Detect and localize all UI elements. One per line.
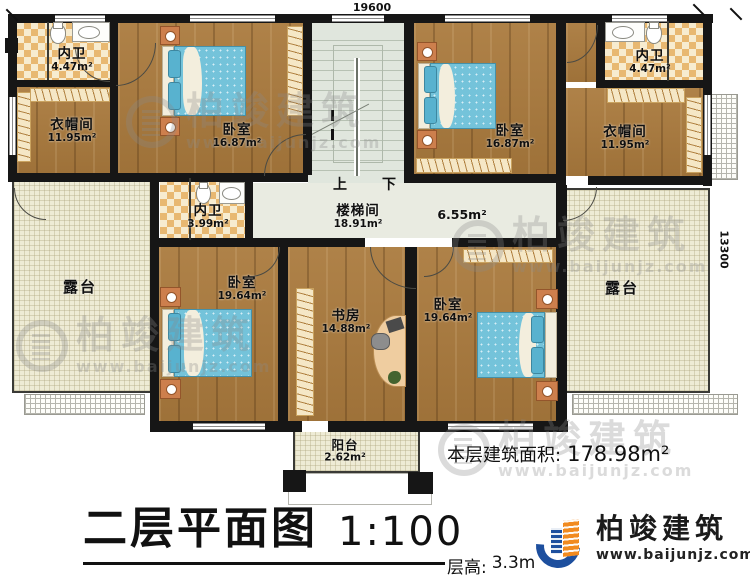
room-label-cloak-right: 衣帽间 11.95m² [601,125,650,151]
railing-side-right [710,94,738,180]
wall-hall-bottom-left [259,238,365,247]
dimension-top: 19600 [340,1,404,14]
window-bath-tl [55,15,105,22]
wall-bed2-right [556,22,566,185]
sink-bath-tr [612,26,634,39]
room-label-terrace-left: 露台 [63,279,97,296]
column-balcony-left [283,470,306,492]
bed3-pillow [168,345,181,373]
hallway-floor [253,183,556,238]
sink-bath-tl [78,26,100,39]
floorplan-page: { "dimensions": { "width_mm": "19600", "… [0,0,750,580]
dim-tick-right [730,8,743,21]
railing-right [572,394,738,415]
balcony-door-opening [302,421,328,432]
brand-text: 柏竣建筑 www.baijunjz.com [596,514,750,563]
nightstand [160,26,180,45]
wardrobe-bedroom4 [463,249,553,263]
title-underline [83,562,445,565]
stair-up-label: 上 [333,174,347,194]
bed4-pillow [531,347,544,374]
nightstand [417,42,437,61]
wardrobe-bedroom2 [416,158,512,173]
room-label-study: 书房 14.88m² [322,309,371,335]
room-label-bedroom1: 卧室 16.87m² [213,123,262,149]
floor-area-note: 本层建筑面积: 178.98m² [447,441,669,467]
wardrobe-cloak-right-side [686,97,702,173]
wall-bath-tr-bottom [596,80,712,88]
bed2-pillow [424,97,437,124]
wall-bath-mid-bottom [150,238,259,247]
room-label-bath-middle: 内卫 3.99m² [187,204,228,230]
hall-area-label: 6.55m² [437,208,486,222]
bed3-mattress [174,309,252,377]
dimension-right: 13300 [718,220,731,280]
bed1-pillow [168,82,181,110]
railing-left [24,394,145,415]
wardrobe-cloak-left-side [17,92,31,162]
toilet-bath-tr [646,24,662,44]
brand-building-blue [551,528,562,554]
bed4-headboard [545,312,557,378]
wardrobe-bedroom1 [287,26,303,116]
wall-stair-right [404,22,414,175]
wardrobe-cloak-left-top [30,88,110,102]
bed1-mattress [174,46,246,116]
bed3-pillow [168,313,181,341]
brand-building-orange [563,519,579,557]
room-label-bedroom3: 卧室 19.64m² [218,276,267,302]
stair-down-label: 下 [382,174,396,194]
bed3-blanket [184,310,204,376]
toilet-bath-tl [50,24,66,44]
stair-arrow-down [331,129,334,140]
floor-height-note: 层高: 3.3m [447,553,535,578]
room-label-cloak-left: 衣帽间 11.95m² [48,118,97,144]
stair-center-rail [354,58,360,176]
brand-block: 柏竣建筑 www.baijunjz.com [536,514,750,572]
room-label-bath-top-left: 内卫 4.47m² [51,47,92,73]
plan-title: 二层平面图 [83,505,318,553]
column-top-left [5,38,18,53]
wall-cloak-r-bottom [588,176,712,185]
column-balcony-right [408,472,433,494]
window-bedroom3 [193,423,265,430]
window-left-wall [9,97,16,155]
window-bedroom1 [190,15,275,22]
nightstand [160,379,181,399]
nightstand [417,130,437,149]
room-label-stairwell: 楼梯间 18.91m² [334,204,383,230]
room-label-bedroom4: 卧室 19.64m² [424,298,473,324]
brand-logo-icon [536,514,590,572]
bed2-pillow [424,66,437,93]
bed4-pillow [531,316,544,343]
window-bath-tr [612,15,667,22]
partition-bath-tl [47,22,49,80]
bed2-mattress [430,63,496,129]
wall-bed3-study [278,247,288,421]
wall-bath-mid-right [245,176,253,246]
nightstand [536,381,558,401]
room-label-bedroom2: 卧室 16.87m² [486,124,535,150]
window-bedroom2 [445,15,530,22]
wall-left-lower [150,182,159,432]
nightstand [160,117,180,136]
room-label-bath-top-right: 内卫 4.47m² [629,49,670,75]
wall-bed2-bottom [404,174,566,183]
window-bedroom4 [448,423,533,430]
plan-scale: 1:100 [338,509,463,555]
window-stairwell [332,15,384,22]
room-label-terrace-right: 露台 [605,280,639,297]
stair-arrow-up [331,110,334,121]
bed1-pillow [168,50,181,78]
toilet-bath-mid [196,184,211,204]
wardrobe-cloak-right-top [607,88,685,103]
room-label-balcony: 阳台 2.62m² [324,438,365,463]
sink-bath-mid [222,187,241,200]
bed2-blanket [439,64,456,128]
wall-hall-bottom-right [452,238,564,247]
window-right-wall [704,95,711,155]
desk-chair [371,333,390,350]
bed1-blanket [183,47,201,115]
nightstand [160,287,181,307]
nightstand [536,289,558,309]
wardrobe-study [296,288,314,416]
wall-bath-tl-bottom [8,80,112,87]
